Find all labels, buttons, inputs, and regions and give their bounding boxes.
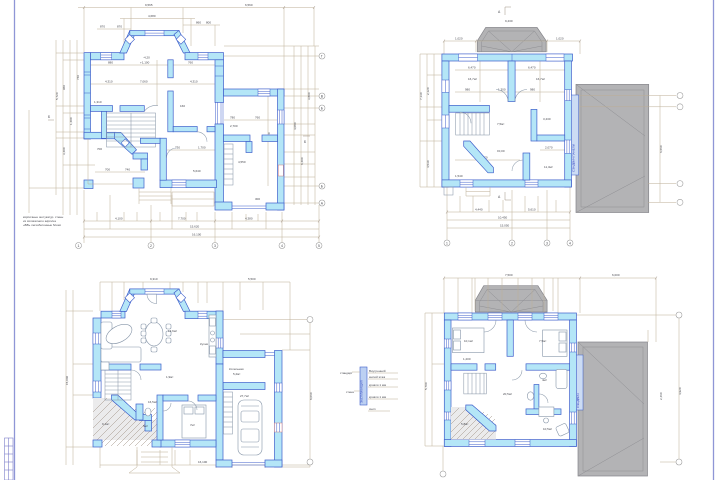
svg-text:20,5м²: 20,5м² [503, 392, 512, 396]
svg-text:4,310: 4,310 [190, 80, 198, 84]
svg-text:6,470: 6,470 [528, 66, 536, 70]
svg-text:6,660: 6,660 [659, 145, 663, 153]
svg-text:11,3м²: 11,3м² [544, 165, 553, 169]
svg-text:2,070: 2,070 [545, 146, 553, 150]
svg-text:4,530: 4,530 [426, 160, 430, 168]
svg-text:7,130: 7,130 [419, 92, 423, 100]
svg-text:Кухня: Кухня [200, 342, 208, 346]
svg-text:880: 880 [108, 61, 113, 65]
svg-text:10,5м²: 10,5м² [543, 427, 552, 431]
svg-text:740: 740 [76, 75, 80, 80]
svg-text:7,5м²: 7,5м² [497, 122, 504, 126]
svg-text:760: 760 [188, 61, 193, 65]
svg-text:Г: Г [321, 54, 323, 58]
svg-text:15,040: 15,040 [65, 375, 69, 385]
svg-text:960: 960 [62, 85, 66, 90]
svg-text:10,1м²: 10,1м² [464, 339, 473, 343]
svg-text:кровля 1 мм: кровля 1 мм [369, 395, 386, 399]
svg-text:3,800: 3,800 [307, 92, 311, 100]
svg-text:5,610: 5,610 [528, 208, 536, 212]
svg-text:4: 4 [281, 244, 283, 248]
svg-text:7,5м²: 7,5м² [539, 339, 546, 343]
svg-text:16,5м²: 16,5м² [148, 400, 157, 404]
svg-text:8,060: 8,060 [309, 392, 313, 400]
svg-text:1,200: 1,200 [463, 357, 471, 361]
svg-text:2: 2 [150, 244, 152, 248]
svg-text:3,400: 3,400 [62, 147, 66, 155]
svg-text:«БВ» легкобетонные блоки: «БВ» легкобетонные блоки [23, 223, 61, 227]
svg-text:740: 740 [125, 168, 130, 172]
svg-text:1,020: 1,020 [455, 37, 463, 41]
svg-text:1,9м²: 1,9м² [166, 375, 173, 379]
svg-text:1,020: 1,020 [556, 37, 564, 41]
svg-text:7м²: 7м² [190, 423, 195, 427]
svg-text:4: 4 [569, 241, 571, 245]
svg-text:1: 1 [446, 241, 448, 245]
svg-text:800: 800 [206, 21, 211, 25]
svg-text:9,430: 9,430 [505, 19, 513, 23]
svg-text:780: 780 [230, 116, 235, 120]
svg-text:6,000: 6,000 [612, 273, 620, 277]
svg-text:9,310: 9,310 [150, 277, 158, 281]
svg-text:15,050: 15,050 [500, 224, 510, 228]
svg-text:27,7м²: 27,7м² [240, 394, 249, 398]
svg-text:снип: снип [369, 407, 376, 411]
svg-text:4м²: 4м² [542, 378, 547, 382]
svg-text:870: 870 [100, 25, 105, 29]
svg-text:7,060: 7,060 [140, 80, 148, 84]
svg-text:Котельная: Котельная [229, 367, 244, 371]
svg-text:СЭНДВИЧ ПАНЕЛИ: СЭНДВИЧ ПАНЕЛИ [572, 144, 576, 172]
svg-text:1,310: 1,310 [94, 100, 102, 104]
svg-text:980: 980 [530, 88, 535, 92]
svg-text:730: 730 [175, 146, 180, 150]
svg-text:16,7м²: 16,7м² [468, 77, 477, 81]
svg-text:1: 1 [78, 244, 80, 248]
svg-text:300: 300 [255, 197, 260, 201]
svg-text:760: 760 [255, 116, 260, 120]
svg-text:±0,00: ±0,00 [497, 149, 505, 153]
svg-text:7,500: 7,500 [505, 273, 513, 277]
svg-text:160: 160 [180, 104, 185, 108]
svg-text:860: 860 [196, 21, 201, 25]
svg-text:2: 2 [511, 241, 513, 245]
svg-text:16,100: 16,100 [198, 460, 208, 464]
svg-text:4,550: 4,550 [238, 160, 246, 164]
svg-text:+1,100: +1,100 [140, 61, 150, 65]
svg-text:5,640: 5,640 [193, 169, 201, 173]
svg-text:4,100: 4,100 [115, 217, 123, 221]
svg-text:10,450: 10,450 [498, 216, 508, 220]
svg-text:3,430: 3,430 [543, 117, 551, 121]
svg-text:Внутренний: Внутренний [369, 369, 386, 373]
svg-text:5,8м²: 5,8м² [461, 422, 468, 426]
svg-text:4,380: 4,380 [245, 217, 253, 221]
svg-text:5м²: 5м² [143, 424, 148, 428]
svg-text:3: 3 [546, 241, 548, 245]
svg-text:9,565: 9,565 [145, 3, 153, 7]
svg-text:кровля 1 мм: кровля 1 мм [369, 383, 386, 387]
svg-text:жилой этаж: жилой этаж [369, 375, 385, 379]
svg-text:5,2м²: 5,2м² [233, 372, 240, 376]
svg-text:4,080: 4,080 [293, 122, 297, 130]
svg-text:980: 980 [465, 88, 470, 92]
svg-text:5,700: 5,700 [424, 382, 428, 390]
svg-text:7,700: 7,700 [178, 217, 186, 221]
svg-text:2,460: 2,460 [659, 392, 663, 400]
svg-text:5: 5 [318, 244, 320, 248]
svg-text:6,470: 6,470 [468, 66, 476, 70]
svg-text:700: 700 [97, 147, 102, 151]
svg-text:ЭКСПЛИКАЦИЯ: ЭКСПЛИКАЦИЯ [360, 380, 364, 403]
svg-text:9,1м²: 9,1м² [102, 422, 109, 426]
svg-text:2,700: 2,700 [230, 124, 238, 128]
svg-text:4,440: 4,440 [475, 208, 483, 212]
svg-text:-4,20: -4,20 [143, 56, 150, 60]
svg-text:СЭНДВИЧ: СЭНДВИЧ [576, 393, 580, 408]
svg-text:1,700: 1,700 [198, 146, 206, 150]
svg-text:6,400: 6,400 [300, 157, 304, 165]
svg-text:6,560: 6,560 [245, 3, 253, 7]
svg-text:4,310: 4,310 [105, 80, 113, 84]
svg-text:1,540: 1,540 [455, 174, 463, 178]
svg-text:16,7м²: 16,7м² [536, 77, 545, 81]
svg-text:700: 700 [105, 168, 110, 172]
svg-text:5,500: 5,500 [248, 277, 256, 281]
svg-text:16,100: 16,100 [192, 233, 202, 237]
svg-text:4,680: 4,680 [148, 14, 156, 18]
svg-text:1,400: 1,400 [69, 117, 73, 125]
svg-text:стена: стена [346, 390, 354, 394]
svg-text:13,6м²: 13,6м² [168, 329, 177, 333]
svg-text:4,920: 4,920 [678, 387, 682, 395]
svg-text:3: 3 [214, 244, 216, 248]
svg-text:15,620: 15,620 [190, 225, 200, 229]
svg-text:2,120: 2,120 [426, 87, 430, 95]
svg-text:5,720: 5,720 [55, 92, 59, 100]
svg-text:стандарт: стандарт [340, 371, 353, 375]
svg-text:870: 870 [117, 25, 122, 29]
